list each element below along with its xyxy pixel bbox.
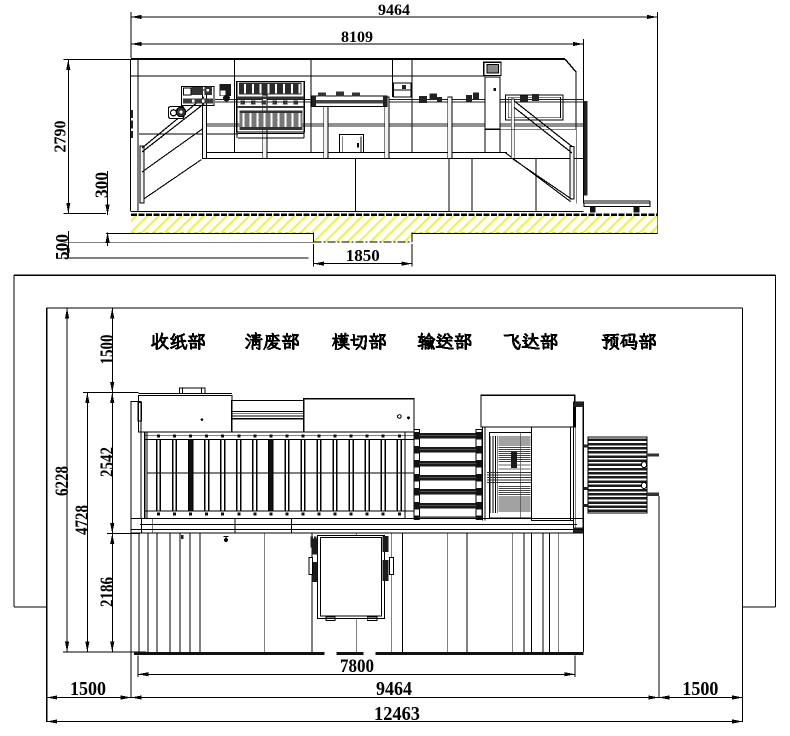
svg-text:12463: 12463: [374, 703, 420, 725]
svg-text:1500: 1500: [70, 678, 106, 700]
svg-text:300: 300: [92, 172, 112, 198]
svg-text:9464: 9464: [378, 2, 410, 19]
svg-text:1500: 1500: [98, 335, 118, 365]
svg-text:8109: 8109: [341, 29, 373, 46]
svg-text:4728: 4728: [73, 505, 93, 535]
svg-text:2542: 2542: [98, 447, 118, 477]
svg-text:2790: 2790: [51, 121, 70, 153]
svg-text:9464: 9464: [376, 678, 412, 700]
svg-text:1500: 1500: [682, 678, 718, 700]
svg-text:2186: 2186: [98, 577, 118, 607]
svg-text:1850: 1850: [346, 246, 380, 265]
svg-text:7800: 7800: [340, 656, 374, 677]
svg-text:500: 500: [52, 234, 72, 260]
svg-text:6228: 6228: [53, 466, 73, 496]
